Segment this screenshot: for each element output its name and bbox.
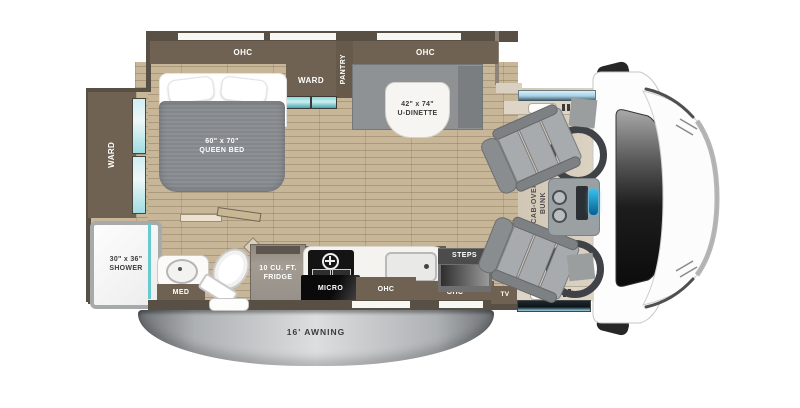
lav-drain	[178, 267, 182, 271]
dash-trim-top	[569, 98, 598, 129]
queen-bed: 60" x 70" QUEEN BED	[159, 101, 285, 192]
wardrobe-slide: WARD	[286, 64, 336, 97]
nightstand-cabinet-2	[311, 96, 337, 109]
rear-wardrobe-label: WARD	[107, 142, 117, 168]
entry-door-window	[439, 301, 483, 308]
shower-door-track	[148, 224, 151, 299]
shower-name-label: SHOWER	[109, 265, 142, 274]
top-window-3	[377, 33, 461, 40]
bottom-window-1	[352, 301, 410, 308]
fridge-size-label: 10 CU. FT.	[259, 265, 296, 273]
fridge-top-vent	[256, 246, 300, 254]
pantry-label: PANTRY	[340, 54, 348, 84]
bed-size-label: 60" x 70"	[205, 138, 239, 146]
lav-sink	[166, 259, 198, 284]
wardrobe-mirror-bottom	[132, 156, 146, 214]
wardrobe-slide-label: WARD	[286, 64, 336, 97]
bath-window	[209, 298, 249, 311]
burner-cross-h	[325, 260, 335, 262]
top-window-2	[270, 33, 336, 40]
fridge-name-label: FRIDGE	[264, 274, 293, 282]
shower-size-label: 30" x 36"	[110, 256, 143, 265]
dinette-size-label: 42" x 74"	[401, 101, 434, 110]
micro-label: MICRO	[318, 285, 343, 293]
cab-front	[583, 55, 733, 345]
kitchen-faucet	[424, 264, 429, 269]
ohc-dinette-label: OHC	[353, 41, 498, 64]
dinette-table: 42" x 74" U-DINETTE	[385, 82, 450, 138]
cupholder-2	[552, 208, 567, 223]
cupholder-1	[552, 190, 567, 205]
cooktop	[308, 250, 354, 277]
dash-trim-bottom	[567, 253, 596, 282]
rv-floorplan: 16' AWNING OHC OHC WARD PANTRY	[0, 0, 800, 408]
steps-label: STEPS	[452, 252, 477, 260]
top-window-1	[178, 33, 264, 40]
microwave: MICRO	[301, 275, 360, 303]
bed-name-label: QUEEN BED	[199, 147, 244, 155]
pantry: PANTRY	[336, 41, 353, 98]
console-screen	[589, 189, 598, 215]
wardrobe-mirror-top	[132, 98, 146, 154]
burner-icon	[322, 253, 339, 270]
shower: 30" x 36" SHOWER	[90, 221, 162, 309]
ohc-bedroom-label: OHC	[150, 41, 336, 64]
dinette-side-panel	[458, 66, 482, 128]
rear-wardrobe: WARD	[88, 92, 136, 218]
awning: 16' AWNING	[138, 310, 494, 366]
awning-label: 16' AWNING	[138, 326, 494, 338]
nightstand-cabinet-1	[285, 96, 311, 109]
bunk-label-1: CAB-OVER	[531, 182, 540, 223]
dinette-name-label: U-DINETTE	[397, 110, 437, 119]
steering-column	[576, 186, 588, 220]
